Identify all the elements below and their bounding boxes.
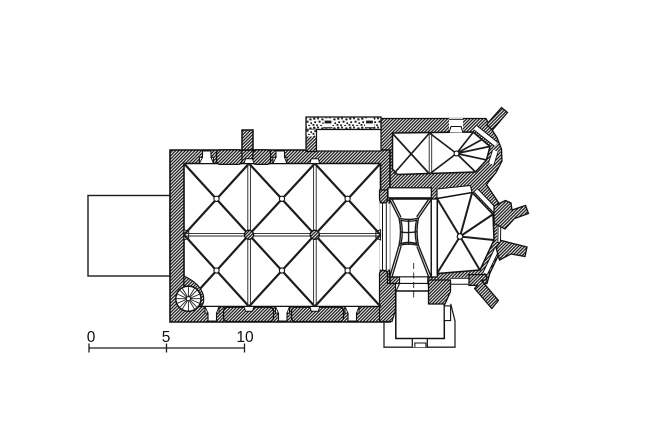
svg-text:5: 5	[162, 329, 171, 346]
svg-text:10: 10	[236, 329, 254, 346]
svg-text:0: 0	[87, 329, 96, 346]
